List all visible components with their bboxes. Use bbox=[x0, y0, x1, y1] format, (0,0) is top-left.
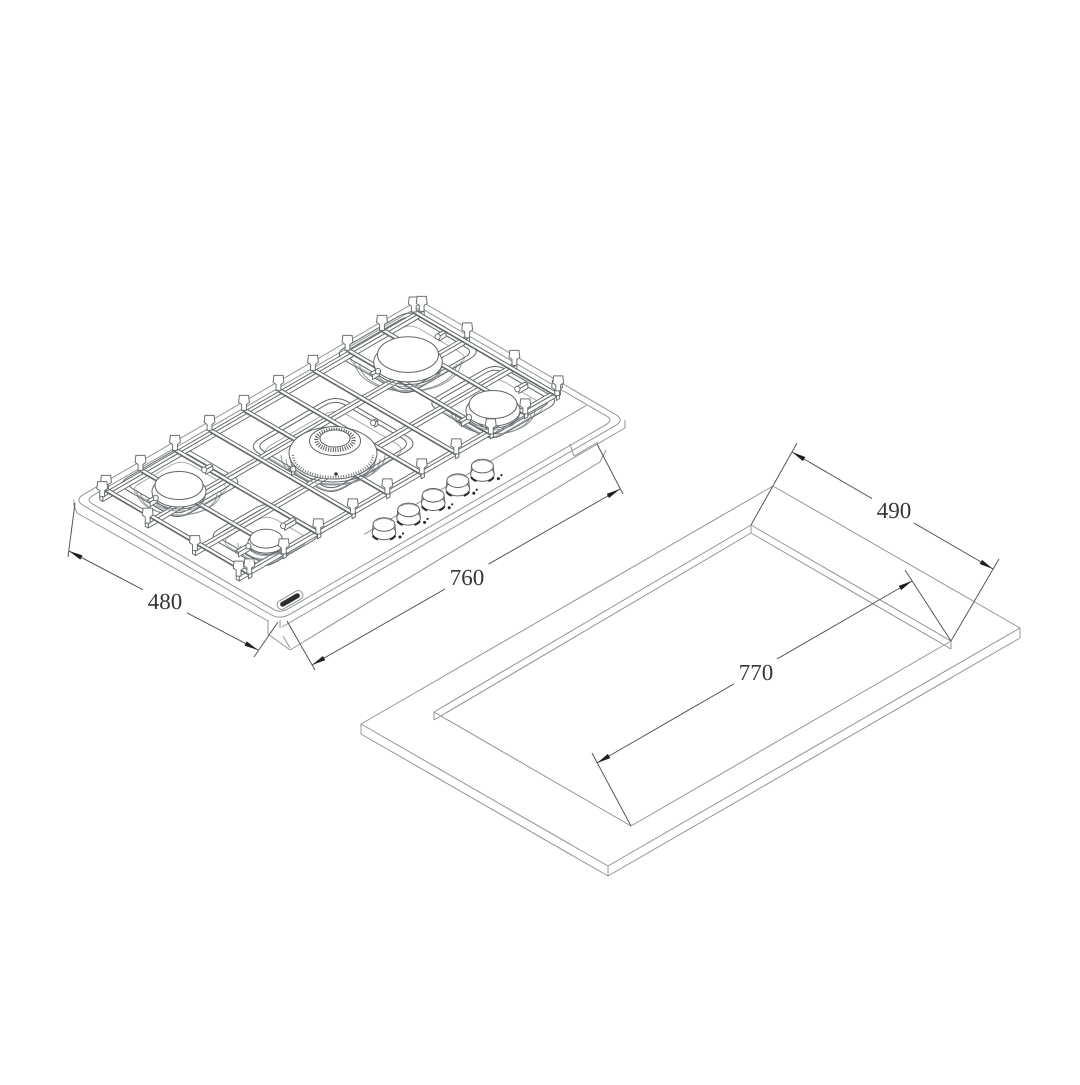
svg-text:770: 770 bbox=[739, 660, 774, 685]
svg-text:490: 490 bbox=[877, 498, 912, 523]
svg-text:760: 760 bbox=[450, 565, 485, 590]
svg-text:480: 480 bbox=[148, 589, 183, 614]
